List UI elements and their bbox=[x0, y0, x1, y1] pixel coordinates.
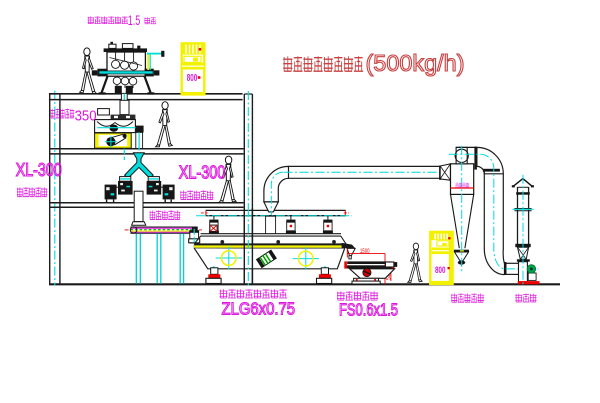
svg-text:1500: 1500 bbox=[360, 248, 370, 255]
svg-text:800: 800 bbox=[435, 265, 446, 276]
svg-text:(500kg/h): (500kg/h) bbox=[366, 50, 465, 76]
svg-text:FS0.6x1.5: FS0.6x1.5 bbox=[339, 300, 398, 320]
svg-text:XL-300: XL-300 bbox=[16, 160, 62, 180]
svg-text:XL-300: XL-300 bbox=[179, 162, 226, 182]
svg-text:ZLG6x0.75: ZLG6x0.75 bbox=[222, 299, 296, 319]
svg-text:350: 350 bbox=[75, 108, 97, 124]
svg-text:800: 800 bbox=[187, 72, 198, 84]
svg-text:1.5: 1.5 bbox=[128, 13, 141, 28]
